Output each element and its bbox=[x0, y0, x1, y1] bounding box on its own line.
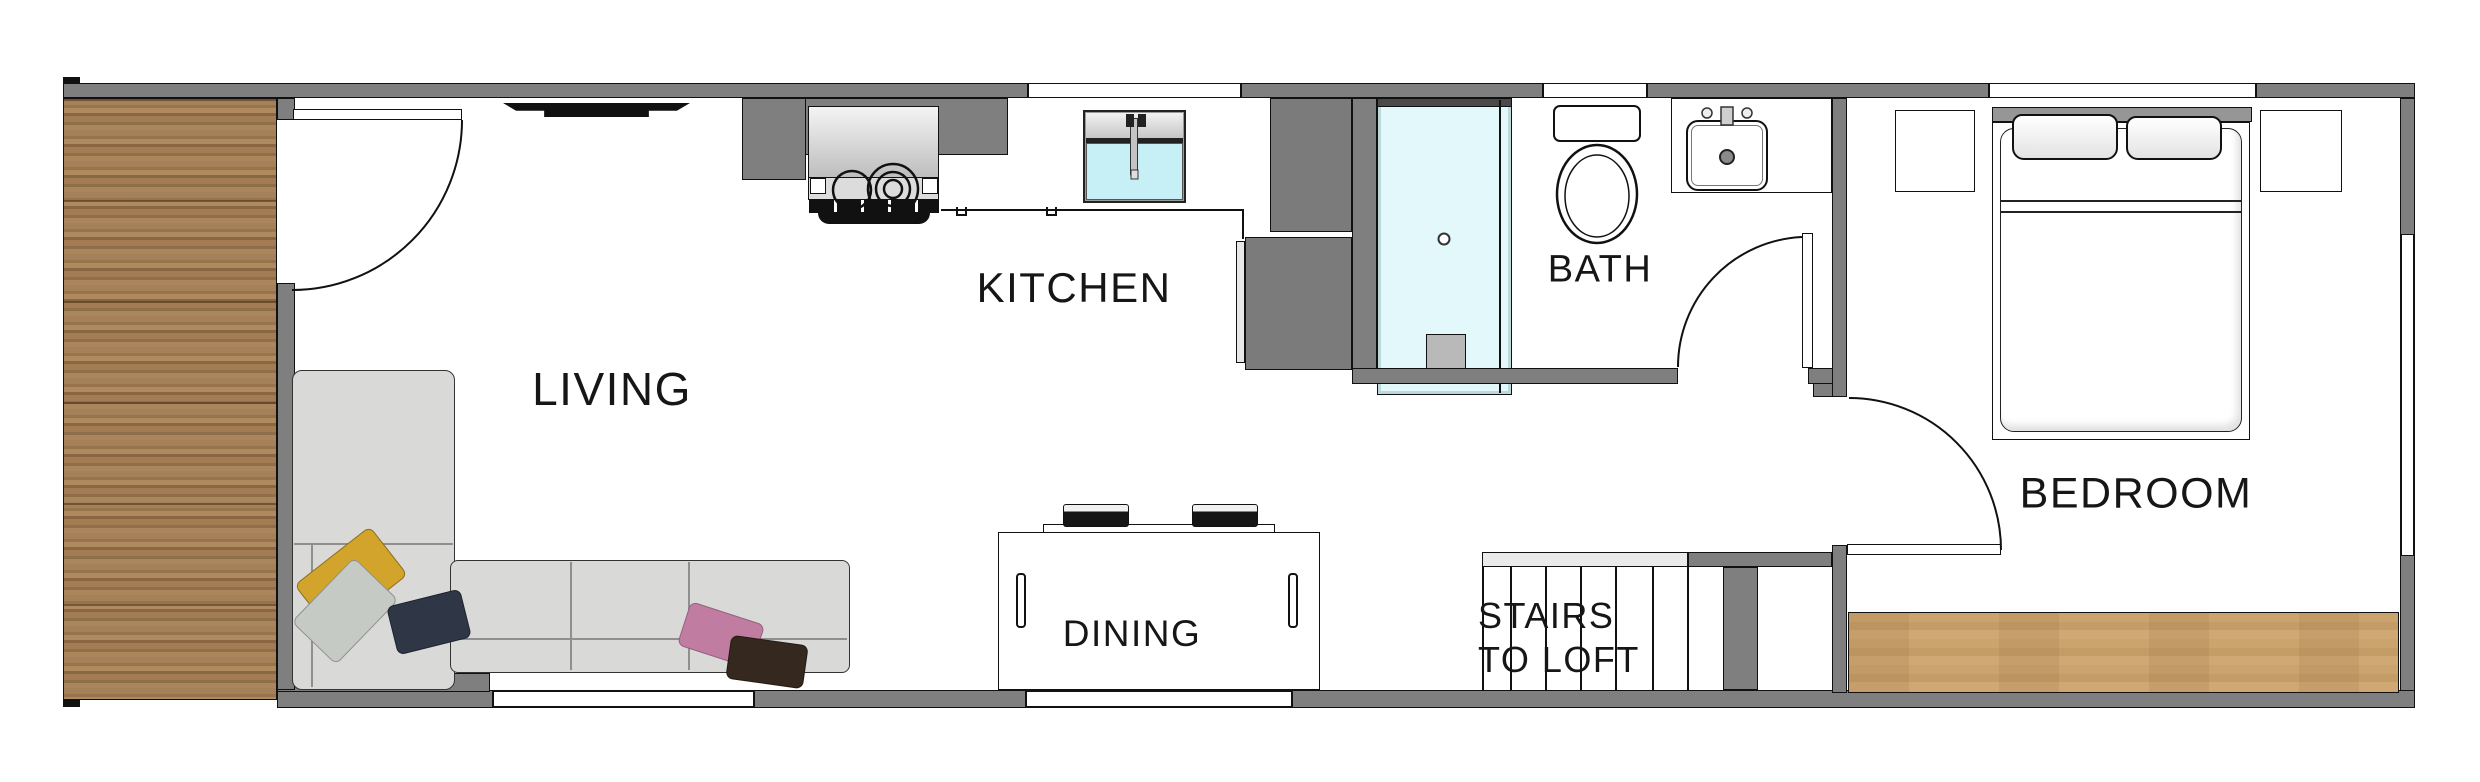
right-wall-window bbox=[2400, 235, 2415, 555]
kitchen-label: KITCHEN bbox=[977, 264, 1172, 312]
sofa-cushion-divider-1 bbox=[570, 562, 572, 670]
bedroom-wall-upper bbox=[1832, 98, 1847, 397]
pantry-door-handle bbox=[1236, 241, 1245, 363]
entry-door-leaf bbox=[293, 109, 462, 120]
bed-blanket-fold-line-1 bbox=[2001, 200, 2241, 202]
floor-stop-bracket-1 bbox=[956, 207, 967, 216]
bed-pillow-left bbox=[2012, 114, 2118, 160]
bedroom-door-swing-arc bbox=[1849, 398, 2001, 550]
nightstand-left bbox=[1895, 110, 1975, 192]
toilet-bowl-outer bbox=[1557, 145, 1637, 243]
bath-door-leaf bbox=[1802, 233, 1813, 368]
stairs-label: STAIRS TO LOFT bbox=[1478, 594, 1640, 682]
dining-stool-right bbox=[1192, 504, 1258, 527]
right-wall-upper bbox=[2400, 98, 2415, 235]
dining-table bbox=[998, 532, 1320, 690]
living-bottom-window bbox=[492, 691, 755, 707]
stove-burner-plate bbox=[808, 177, 939, 200]
bath-bottom-wall-left bbox=[1352, 368, 1678, 384]
kitchen-floor-line-v bbox=[1242, 209, 1244, 239]
toilet-tank bbox=[1553, 105, 1641, 142]
kitchen-floor-line-h bbox=[941, 209, 1244, 211]
dining-table-handle-left bbox=[1016, 573, 1026, 628]
entry-door-swing-arc bbox=[292, 120, 462, 290]
dining-table-handle-right bbox=[1288, 573, 1298, 628]
kitchen-top-window bbox=[1027, 83, 1242, 98]
stair-side-wall bbox=[1723, 567, 1758, 690]
bath-door-swing-arc bbox=[1678, 237, 1802, 367]
bed-mattress bbox=[2000, 128, 2242, 432]
right-wall-lower bbox=[2400, 555, 2415, 707]
living-label: LIVING bbox=[532, 362, 692, 416]
dining-label: DINING bbox=[1063, 613, 1202, 655]
stove-side-knob-right bbox=[922, 178, 938, 194]
dining-bottom-window bbox=[1025, 691, 1293, 707]
bedroom-label: BEDROOM bbox=[2020, 470, 2253, 519]
oven-handle bbox=[818, 213, 930, 224]
stair-tread-line bbox=[1687, 567, 1689, 690]
stairs-label-line1: STAIRS bbox=[1478, 595, 1614, 636]
top-left-wall-tick bbox=[63, 77, 80, 84]
bottom-left-wall-tick bbox=[63, 699, 80, 707]
fridge bbox=[1270, 98, 1352, 232]
bath-label: BATH bbox=[1548, 249, 1653, 292]
sofa-backrest-line bbox=[455, 638, 847, 640]
bath-sink-basin bbox=[1686, 120, 1768, 191]
bedroom-closet-wood-floor bbox=[1848, 612, 2399, 693]
kitchen-counter-left-block bbox=[742, 98, 806, 180]
shower-left-wall bbox=[1352, 98, 1377, 384]
stairs-label-line2: TO LOFT bbox=[1478, 639, 1640, 680]
pantry-cabinet bbox=[1245, 237, 1352, 370]
oven-door-bar bbox=[809, 199, 939, 213]
stair-tread-line bbox=[1652, 567, 1654, 690]
shower-glass-line bbox=[1499, 100, 1501, 393]
pillow-brown bbox=[725, 635, 808, 689]
nightstand-right bbox=[2260, 110, 2342, 192]
bed-blanket-fold-line-2 bbox=[2001, 211, 2241, 213]
bedroom-top-window bbox=[1988, 83, 2257, 98]
bath-top-window bbox=[1542, 83, 1648, 98]
stair-landing-light bbox=[1482, 552, 1688, 567]
bedroom-door-leaf bbox=[1847, 544, 2001, 555]
floor-plan: LIVING KITCHEN BATH DINING STAIRS TO LOF… bbox=[0, 0, 2480, 782]
bedroom-wall-lower bbox=[1832, 545, 1847, 693]
toilet-bowl-inner bbox=[1565, 155, 1629, 237]
shower-head-wall-bar bbox=[1377, 98, 1512, 107]
bed-pillow-right bbox=[2126, 116, 2222, 160]
tv-icon bbox=[503, 103, 690, 117]
floor-stop-bracket-2 bbox=[1046, 207, 1057, 216]
stove-side-knob-left bbox=[810, 178, 826, 194]
dining-stool-left bbox=[1063, 504, 1129, 527]
stove-body bbox=[808, 106, 939, 179]
stair-landing-gray bbox=[1688, 552, 1832, 567]
kitchen-faucet-icon bbox=[1130, 118, 1138, 178]
entry-deck-wood bbox=[63, 98, 277, 700]
